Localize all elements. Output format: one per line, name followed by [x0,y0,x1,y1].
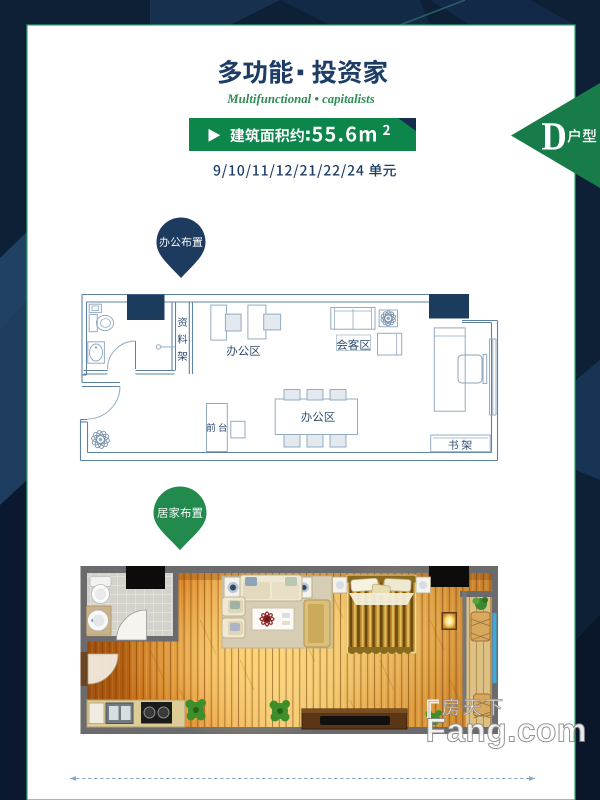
svg-text:Fang.com: Fang.com [426,713,587,750]
svg-text:Multifunctional • capitalists: Multifunctional • capitalists [226,92,374,106]
